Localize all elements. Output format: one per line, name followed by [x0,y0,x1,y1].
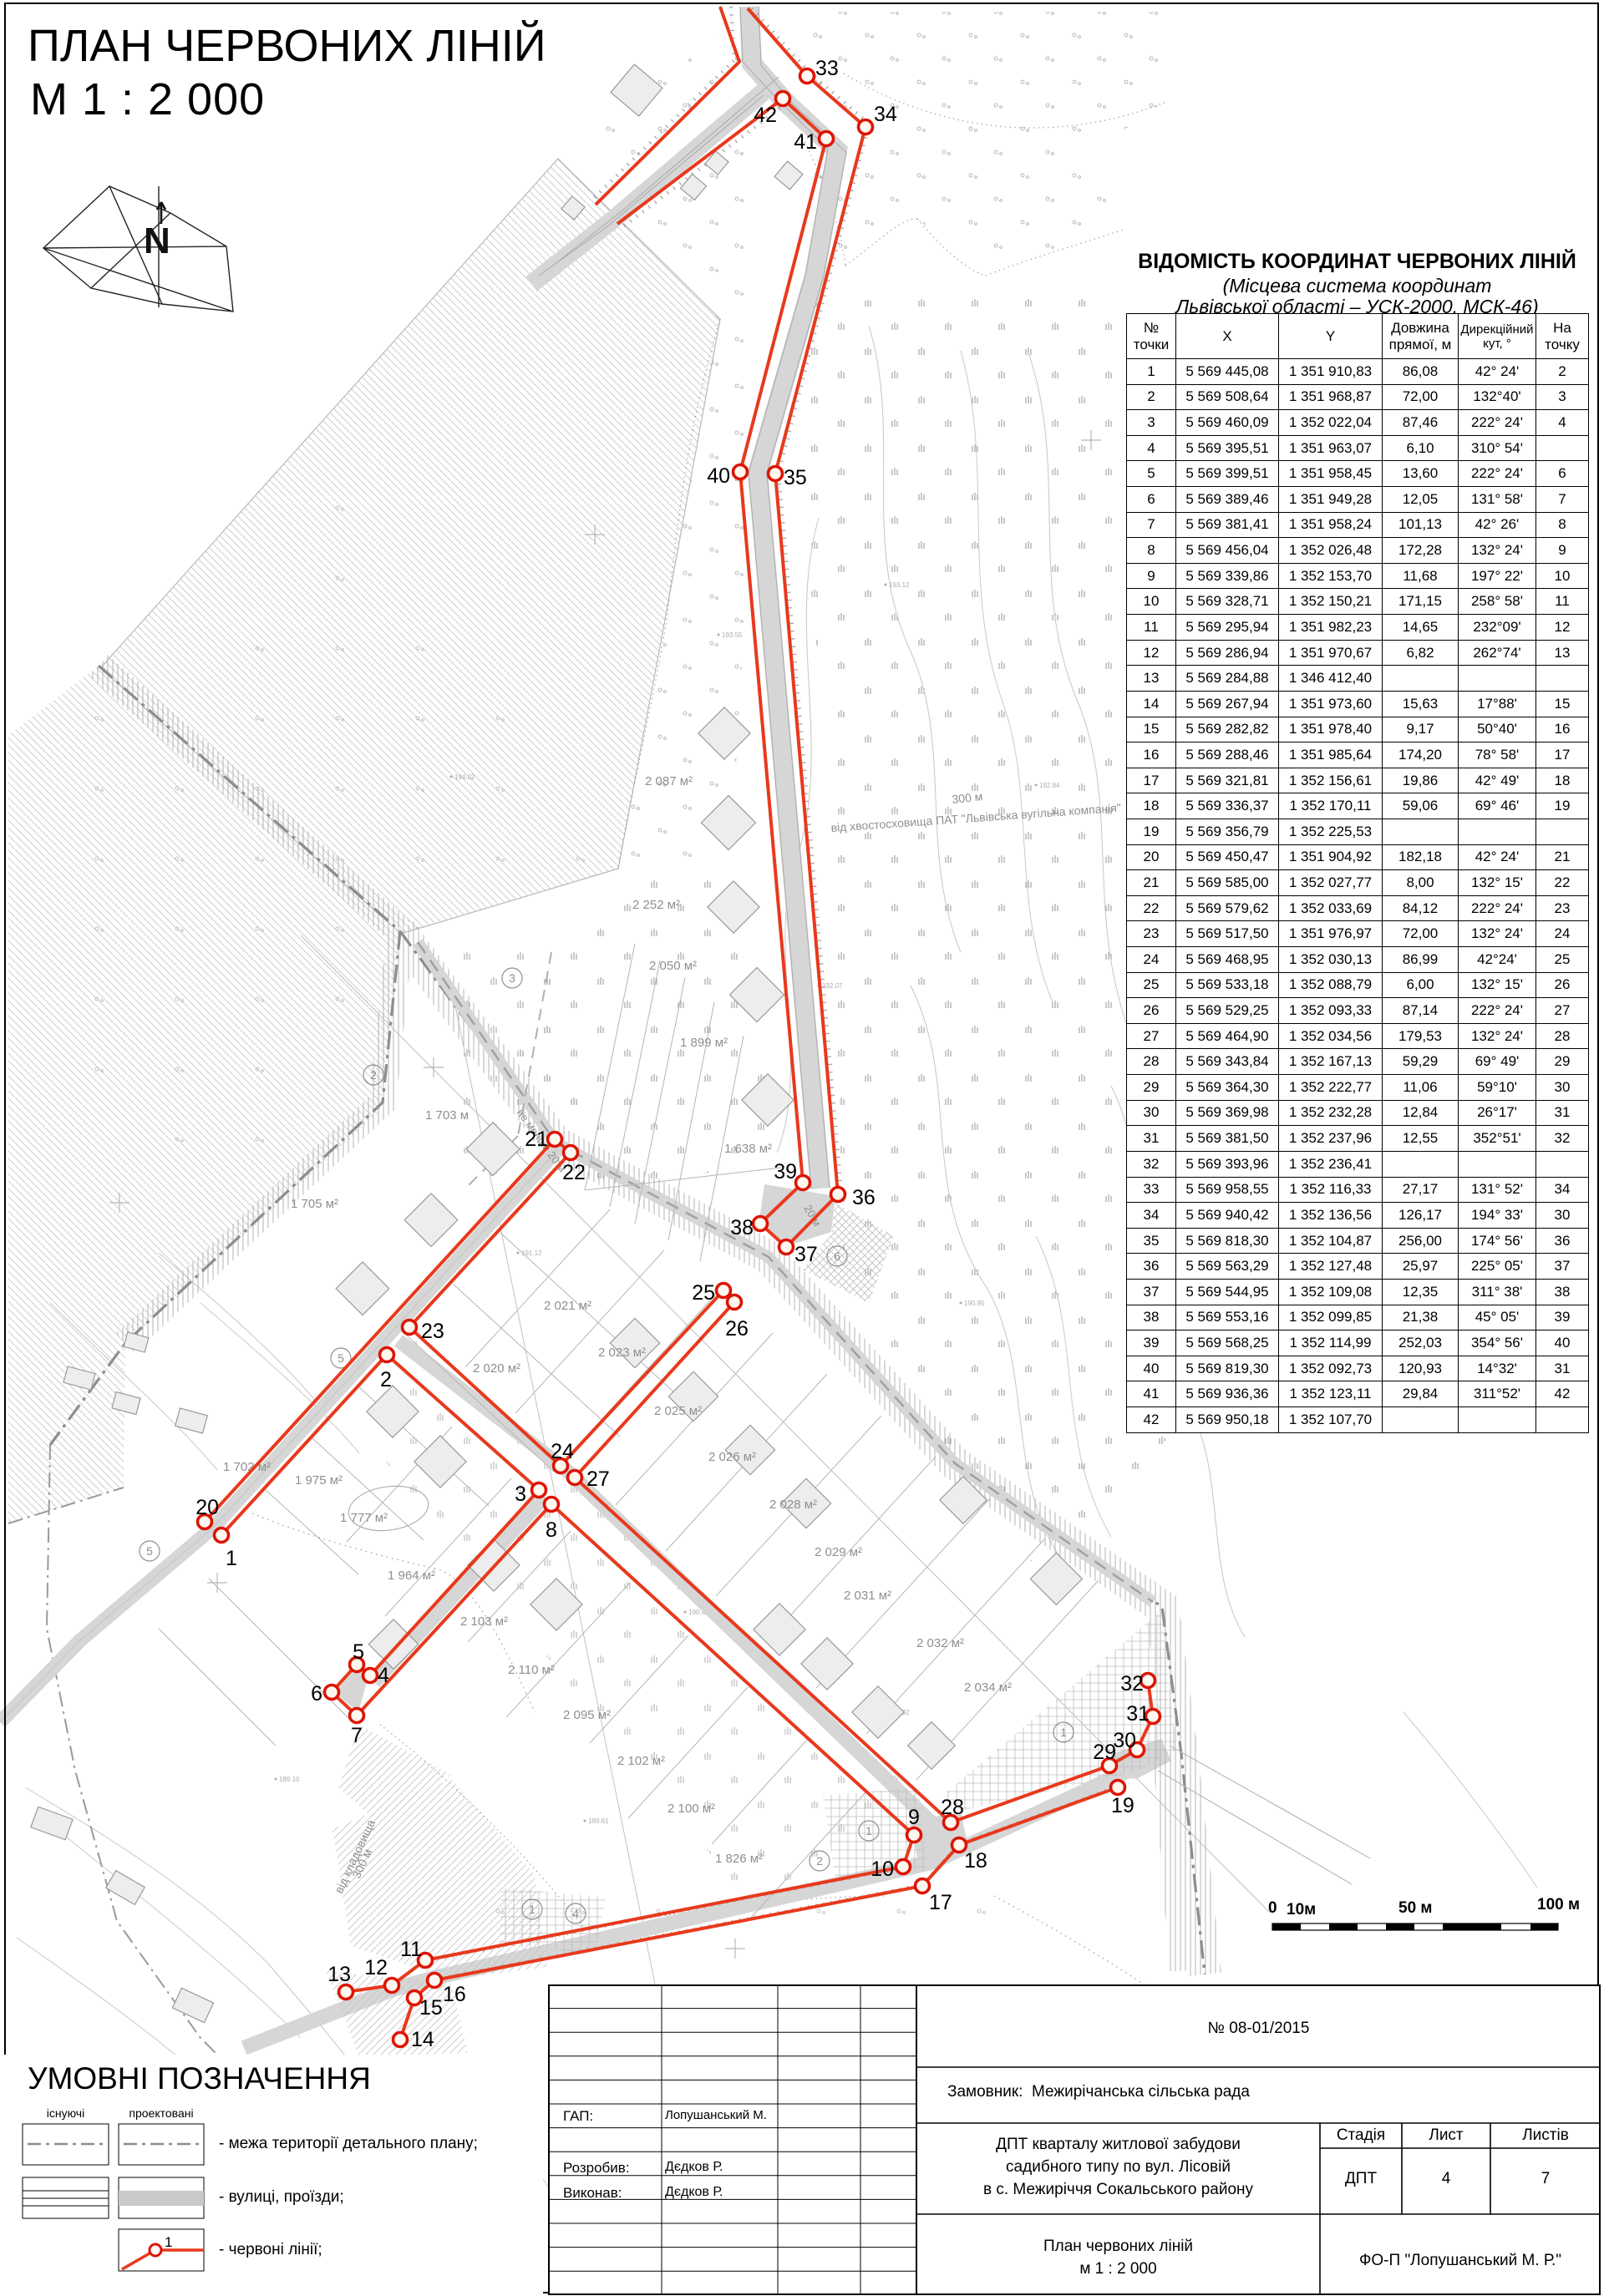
svg-text:1: 1 [165,2234,172,2250]
